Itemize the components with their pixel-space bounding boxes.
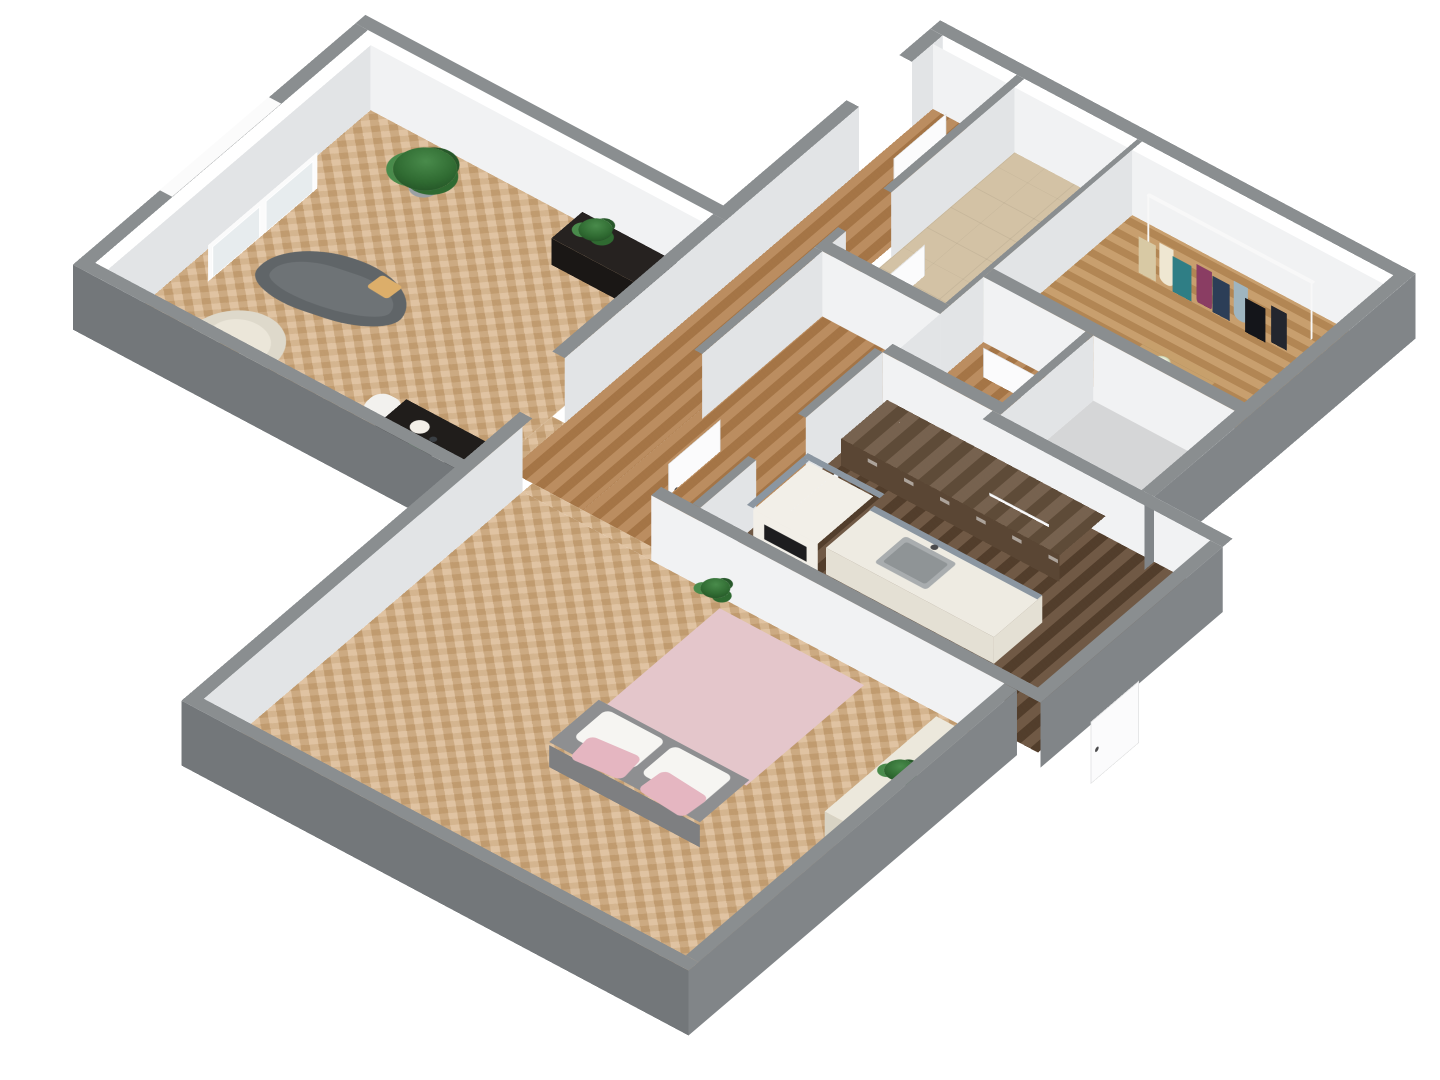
floor-plan-canvas — [0, 0, 1440, 1080]
clothes-rack-end-right — [1311, 281, 1313, 340]
hanging-garment-2 — [1159, 243, 1173, 289]
kitchen-east-door-handle — [1095, 745, 1099, 753]
